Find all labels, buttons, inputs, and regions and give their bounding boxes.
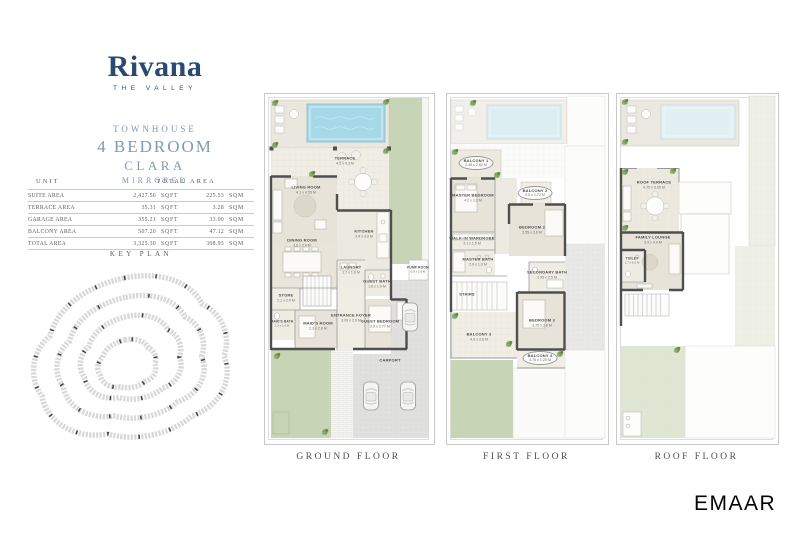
- area-table-header: UNIT TOTAL AREA: [28, 176, 254, 189]
- table-row: GARAGE AREA 355.21 SQFT 33.00 SQM: [28, 213, 254, 225]
- roof-floor-drawing: [617, 94, 778, 444]
- col-total-area: TOTAL AREA: [118, 178, 254, 185]
- key-plan-title: KEY PLAN: [28, 250, 254, 258]
- room-label-toilet: TOILET1.7 x 1.6 M: [625, 257, 640, 264]
- pool: [307, 104, 385, 142]
- room-label-guest-bedroom: GUEST BEDROOM3.5 x 2.77 M: [361, 320, 399, 329]
- table-row: BALCONY AREA 507.20 SQFT 47.12 SQM: [28, 225, 254, 237]
- room-label-terrace: TERRACE4.5 x 4.3 M: [335, 157, 356, 166]
- brochure-page: Rivana THE VALLEY TOWNHOUSE 4 BEDROOM CL…: [0, 0, 800, 533]
- room-label-stairs: STAIRS: [459, 293, 475, 298]
- room-label-secondary-bath: SECONDARY BATH1.95 x 2.5 M: [527, 271, 567, 280]
- room-label-balcony1: BALCONY 12.49 x 2.62 M: [459, 156, 494, 170]
- car-icon: [403, 303, 418, 331]
- room-label-balcony2: BALCONY 22.5 x 1.72 M: [518, 186, 553, 200]
- room-label-balcony4: BALCONY 43.75 x 1.25 M: [523, 351, 558, 365]
- table-row: SUITE AREA 2,427.56 SQFT 225.53 SQM: [28, 189, 254, 201]
- rivana-tagline: THE VALLEY: [55, 85, 255, 92]
- area-table: UNIT TOTAL AREA SUITE AREA 2,427.56 SQFT…: [28, 176, 254, 250]
- room-label-dining: DINING ROOM3.6 x 2.4 M: [287, 239, 317, 248]
- key-plan-map: [24, 264, 238, 460]
- room-label-master-bath: MASTER BATH2.9 x 1.9 M: [462, 258, 493, 267]
- room-label-kitchen: KITCHEN3.4 x 3.9 M: [354, 230, 373, 239]
- pool-below: [661, 105, 735, 139]
- room-label-carport: CARPORT: [379, 359, 400, 364]
- table-row: TOTAL AREA 3,325.30 SQFT 308.93 SQM: [28, 237, 254, 250]
- room-label-maids-room: MAID'S ROOM2.3 x 2.6 M: [303, 322, 333, 331]
- toilet-floor: [621, 250, 645, 282]
- emaar-logo: EMAAR: [694, 492, 790, 516]
- brand-block: Rivana THE VALLEY: [55, 52, 255, 92]
- first-floor-panel: BALCONY 12.49 x 2.62 M MASTER BEDROOM4.2…: [446, 93, 609, 445]
- roof-floor-label: ROOF FLOOR: [616, 452, 777, 462]
- pool-below: [487, 105, 561, 139]
- ground-floor-panel: TERRACE4.5 x 4.3 M LIVING ROOM4.1 x 4.55…: [264, 93, 435, 445]
- terrace-table: [646, 197, 664, 215]
- room-label-living: LIVING ROOM4.1 x 4.55 M: [291, 186, 320, 195]
- unit-name: CLARA: [55, 158, 255, 174]
- room-label-bedroom3: BEDROOM 33.75 x 3.6 M: [529, 319, 555, 328]
- room-label-store: STORE2.1 x 2.0 M: [277, 294, 295, 303]
- room-label-maids-bath: MAID'S BATH1.3 x 1.6 M: [271, 320, 294, 327]
- room-label-pump-room: PUMP ROOM0.9 x 1.6 M: [407, 266, 429, 273]
- terrace-table: [355, 174, 372, 191]
- room-label-master-bedroom: MASTER BEDROOM4.2 x 3.2 M: [452, 194, 494, 203]
- unit-type: TOWNHOUSE: [55, 124, 255, 134]
- room-label-balcony3: BALCONY 34.0 x 3.6 M: [467, 333, 492, 342]
- col-unit: UNIT: [28, 178, 118, 185]
- room-label-guest-bath: GUEST BATH1.6 x 1.9 M: [363, 280, 391, 289]
- roof-floor-panel: ROOF TERRACE4.75 x 3.05 M FAMILY LOUNGE3…: [616, 93, 779, 445]
- room-label-laundry: LAUNDRY1.7 x 1.9 M: [341, 266, 362, 275]
- table-row: TERRACE AREA 35.31 SQFT 3.28 SQM: [28, 201, 254, 213]
- room-label-family-lounge: FAMILY LOUNGE3.9 x 4.4 M: [635, 236, 670, 245]
- rug: [294, 195, 316, 217]
- garden-below: [451, 360, 513, 438]
- car-icon: [364, 382, 379, 410]
- rivana-logo: Rivana: [55, 52, 255, 82]
- unit-bedrooms: 4 BEDROOM: [55, 137, 255, 157]
- room-label-bedroom2: BEDROOM 23.55 x 3.6 M: [519, 226, 545, 235]
- first-floor-label: FIRST FLOOR: [446, 452, 607, 462]
- garden-rear: [271, 350, 331, 438]
- room-label-walkin: WALK-IN WARDROBE3.1 x 1.5 M: [449, 237, 494, 246]
- ground-floor-label: GROUND FLOOR: [264, 452, 433, 462]
- car-icon: [401, 382, 416, 410]
- room-label-roof-terrace: ROOF TERRACE4.75 x 3.05 M: [637, 181, 671, 190]
- garden-strip: [389, 98, 423, 264]
